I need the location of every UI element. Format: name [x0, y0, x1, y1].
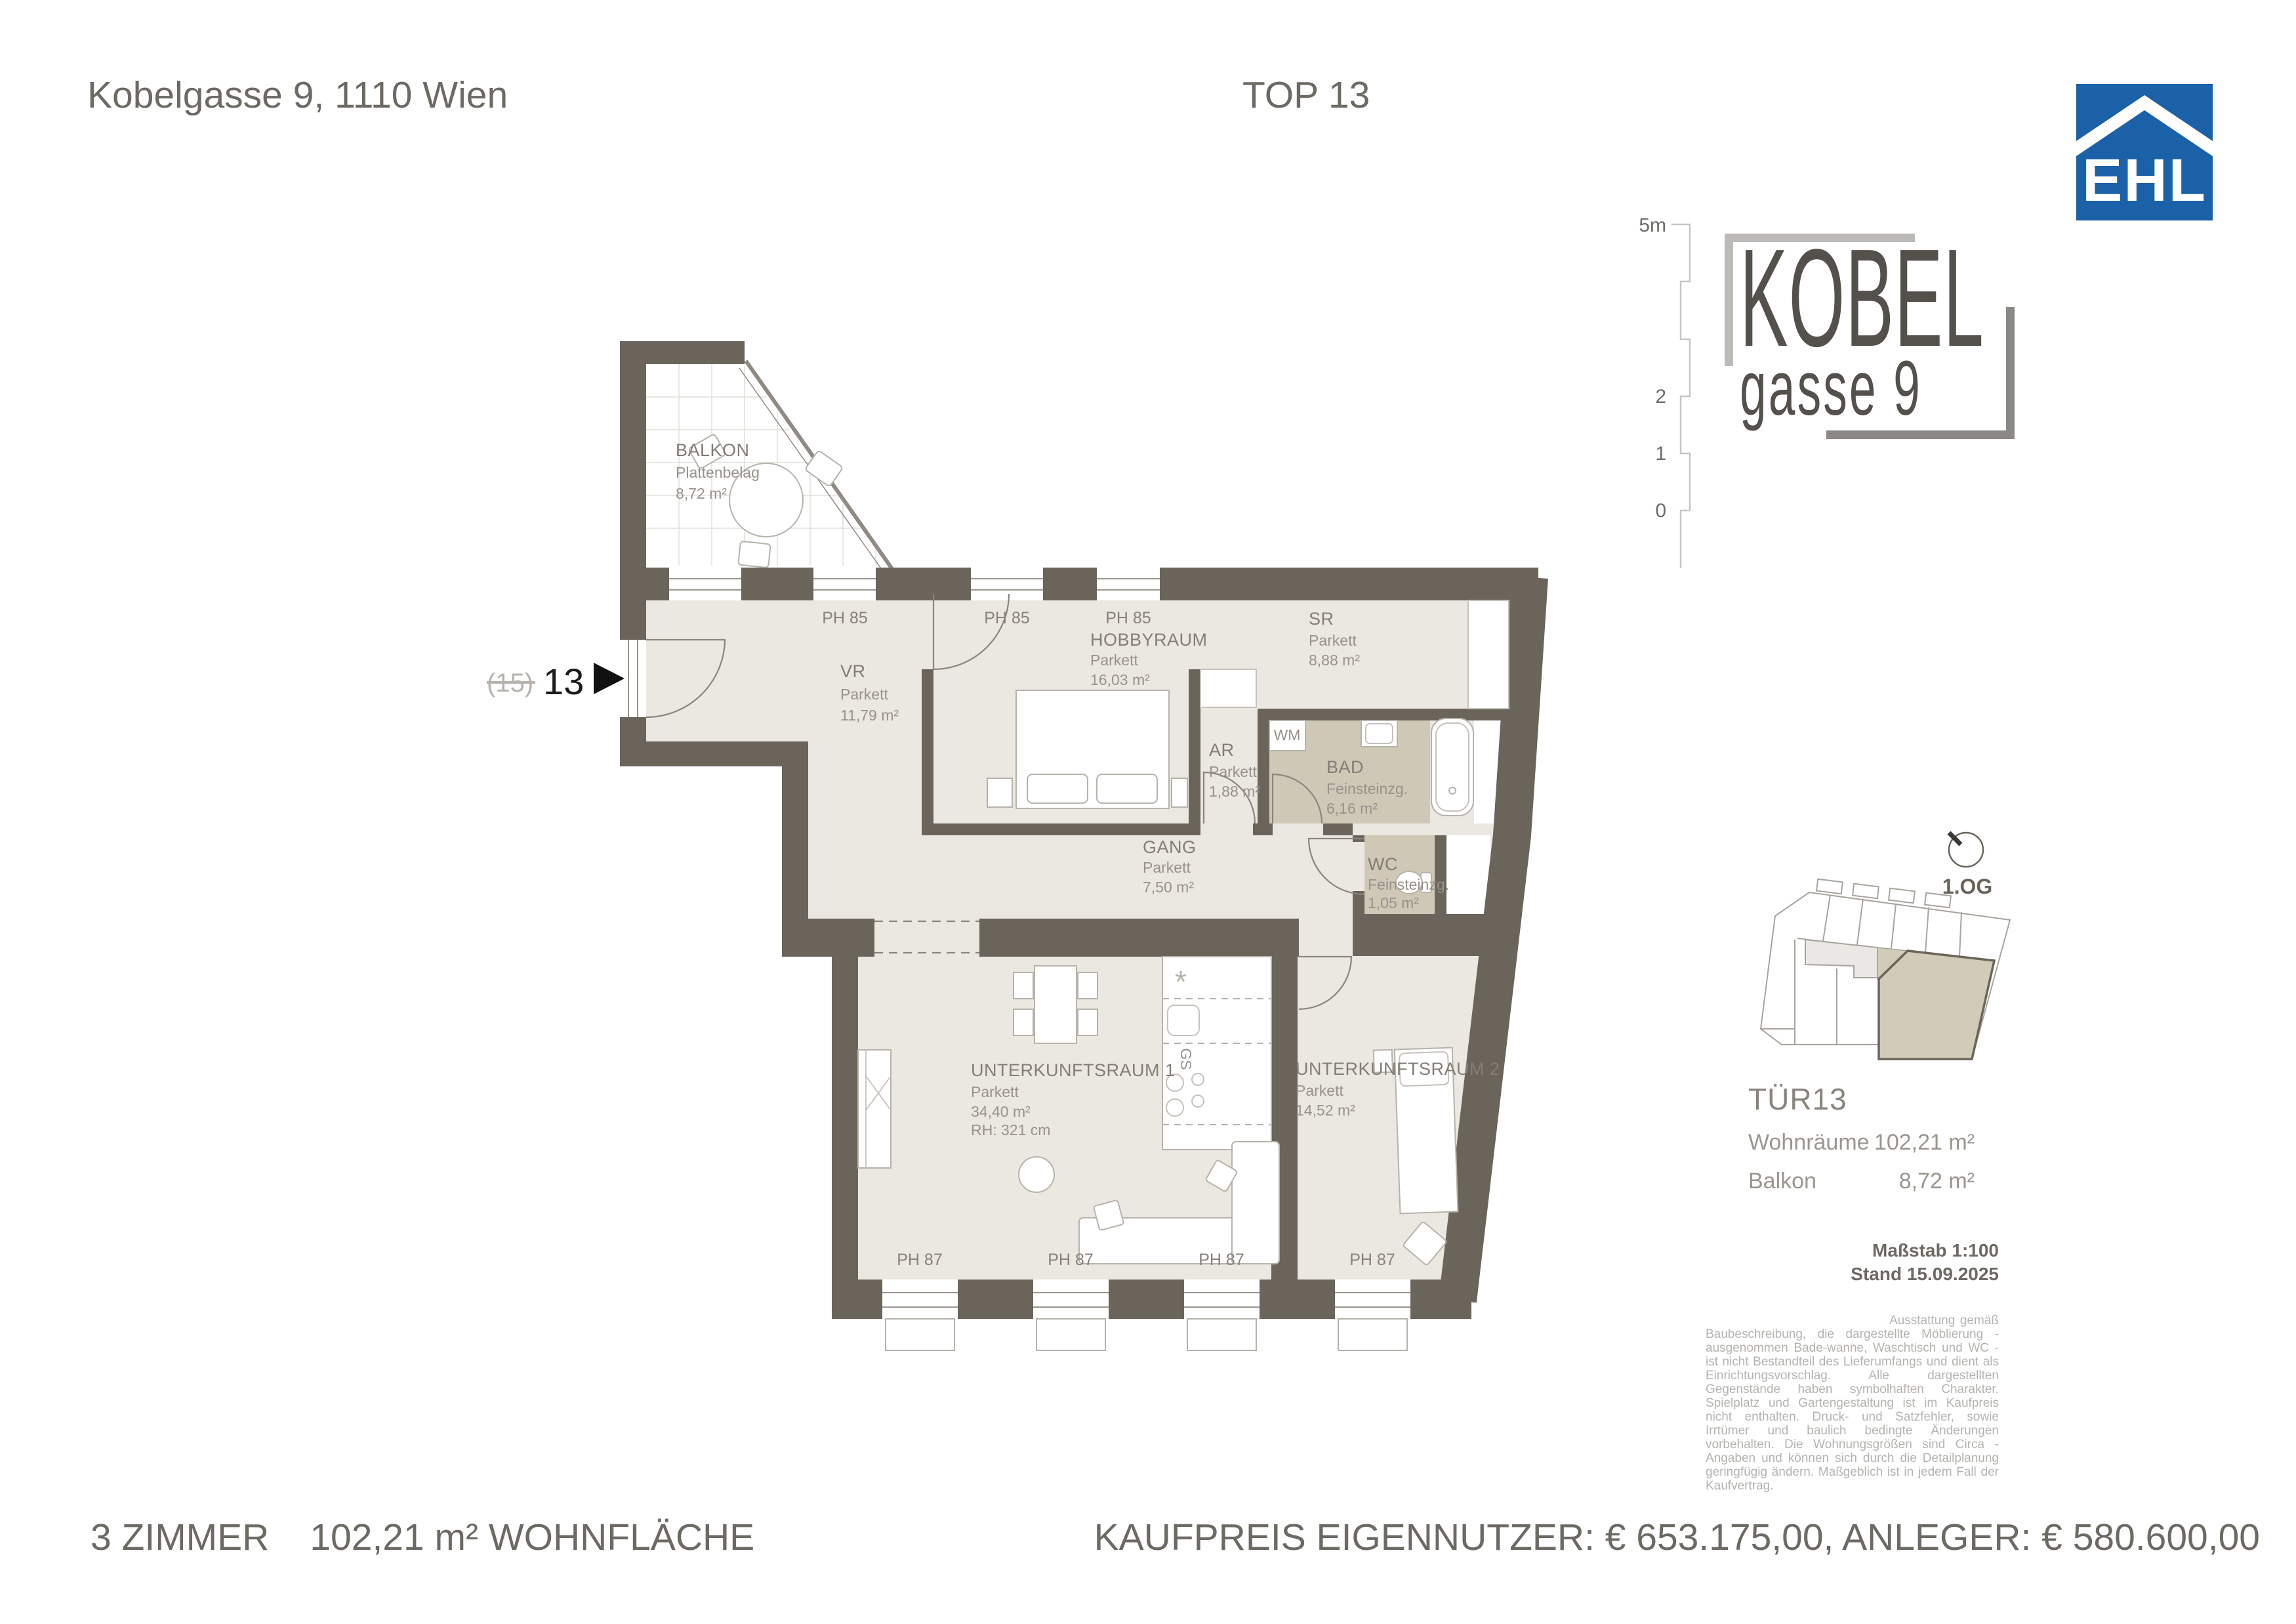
- room-vr-area: 11,79 m²: [840, 707, 899, 724]
- ph87-label-1: PH 87: [897, 1251, 942, 1269]
- ph87-label-3: PH 87: [1199, 1251, 1244, 1269]
- wohnraeume-label: Wohnräume: [1748, 1130, 1870, 1156]
- freezer-icon: *: [1175, 965, 1187, 999]
- room-vr-name: VR: [840, 661, 866, 681]
- ph87-label-2: PH 87: [1048, 1251, 1093, 1269]
- wohnraeume-value: 102,21 m²: [1874, 1130, 1975, 1156]
- unit-info-row: Balkon 8,72 m²: [1748, 1169, 1975, 1194]
- room-sr-area: 8,88 m²: [1309, 652, 1360, 669]
- dishwasher-label: GS: [1178, 1048, 1195, 1070]
- room-bad-area: 6,16 m²: [1326, 800, 1378, 817]
- scale-note: Maßstab 1:100: [1851, 1239, 1999, 1262]
- room-ar-area: 1,88 m²: [1209, 783, 1260, 800]
- room-wc-area: 1,05 m²: [1368, 894, 1419, 911]
- scale-bar: 5m 2 1 0: [1639, 215, 1690, 568]
- balkon-value: 8,72 m²: [1899, 1169, 1975, 1194]
- room-gang-name: GANG: [1143, 837, 1197, 857]
- room-gang-area: 7,50 m²: [1143, 879, 1194, 896]
- unit-info-row: Wohnräume 102,21 m²: [1748, 1130, 1975, 1156]
- room-gang-finish: Parkett: [1143, 859, 1191, 876]
- unit-door-label: TÜR13: [1748, 1081, 1975, 1117]
- footer-price: KAUFPREIS EIGENNUTZER: € 653.175,00, ANL…: [1094, 1516, 2260, 1559]
- room-ur2-area: 14,52 m²: [1296, 1102, 1355, 1119]
- floor-indicator: 1.OG: [1942, 833, 1992, 898]
- plan-notes: Maßstab 1:100 Stand 15.09.2025: [1851, 1239, 1999, 1287]
- date-note: Stand 15.09.2025: [1851, 1262, 1999, 1286]
- room-ur1-finish: Parkett: [971, 1083, 1019, 1100]
- room-wc-name: WC: [1368, 854, 1398, 874]
- floorplan-sheet: { "header": { "address": "Kobelgasse 9, …: [0, 0, 2296, 1624]
- room-hobbyraum-name: HOBBYRAUM: [1090, 630, 1208, 650]
- ph85-label-1: PH 85: [822, 609, 867, 627]
- ph87-label-4: PH 87: [1349, 1251, 1395, 1269]
- room-sr-finish: Parkett: [1309, 632, 1357, 649]
- room-balkon-name: BALKON: [676, 440, 750, 460]
- room-bad-name: BAD: [1326, 757, 1364, 777]
- scale-label-0: 0: [1655, 500, 1666, 522]
- ph85-label-3: PH 85: [1105, 609, 1151, 627]
- scale-label-2: 2: [1655, 386, 1666, 407]
- entrance-number: 13: [543, 661, 584, 702]
- entrance-arrow-icon: [594, 663, 625, 694]
- rooms-count: 3 ZIMMER: [91, 1516, 269, 1558]
- room-ar-name: AR: [1209, 740, 1235, 760]
- footer-summary: 3 ZIMMER102,21 m² WOHNFLÄCHE: [91, 1516, 754, 1559]
- room-balkon-area: 8,72 m²: [676, 485, 727, 502]
- room-ur2-name: UNTERKUNFTSRAUM 2: [1296, 1059, 1500, 1079]
- ph85-label-2: PH 85: [984, 609, 1029, 627]
- room-ur1-height: RH: 321 cm: [971, 1121, 1050, 1138]
- key-plan: [1761, 879, 2010, 1059]
- room-ar-finish: Parkett: [1209, 763, 1257, 780]
- room-balkon-finish: Plattenbelag: [676, 464, 760, 481]
- room-vr-finish: Parkett: [840, 686, 888, 703]
- room-hobbyraum-area: 16,03 m²: [1090, 671, 1150, 688]
- room-sr-name: SR: [1309, 609, 1334, 629]
- entrance-marker: (15) 13: [487, 661, 625, 702]
- room-bad-finish: Feinsteinzg.: [1326, 780, 1408, 797]
- room-ur1-name: UNTERKUNFTSRAUM 1: [971, 1060, 1176, 1080]
- balkon-label: Balkon: [1748, 1169, 1816, 1194]
- scale-top-label: 5m: [1639, 215, 1666, 236]
- unit-info-block: TÜR13 Wohnräume 102,21 m² Balkon 8,72 m²: [1748, 1081, 1975, 1194]
- room-hobbyraum-finish: Parkett: [1090, 652, 1138, 669]
- washing-machine-label: WM: [1274, 726, 1301, 743]
- room-ur2-finish: Parkett: [1296, 1082, 1343, 1099]
- living-area: 102,21 m² WOHNFLÄCHE: [310, 1516, 754, 1558]
- void-right-of-wc: [1446, 835, 1490, 914]
- legal-disclaimer: Ausstattung gemäß Baubeschreibung, die d…: [1706, 1314, 1999, 1493]
- room-wc-finish: Feinsteinzg.: [1368, 876, 1449, 893]
- scale-label-1: 1: [1655, 443, 1666, 465]
- room-ur1-area: 34,40 m²: [971, 1103, 1031, 1120]
- floor-label: 1.OG: [1942, 875, 1992, 898]
